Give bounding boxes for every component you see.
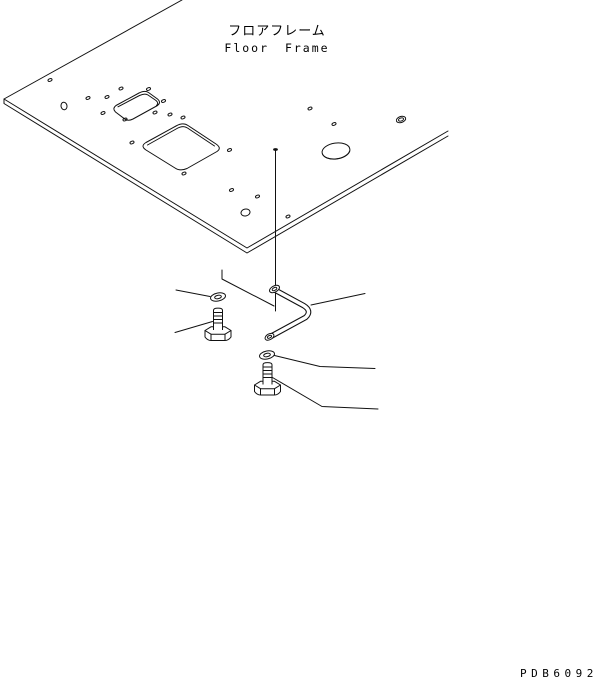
bolt-hole bbox=[101, 111, 106, 115]
leader-line-bent bbox=[222, 270, 274, 306]
bolt-hole bbox=[153, 111, 158, 115]
bent-rod bbox=[264, 284, 309, 342]
bolt-hole bbox=[146, 87, 151, 91]
bolt-hole bbox=[181, 116, 186, 120]
leader-line-rod bbox=[311, 294, 365, 306]
title-english: Floor Frame bbox=[179, 41, 375, 55]
cutout-large bbox=[143, 124, 219, 170]
diagram-page: フロアフレーム Floor Frame PDB6092 bbox=[0, 0, 606, 684]
bolt-hole bbox=[229, 188, 234, 192]
bolt-hole bbox=[332, 122, 337, 126]
bolt-upper bbox=[205, 308, 231, 340]
bolt-hole bbox=[182, 172, 187, 176]
leader-line-washer-upper bbox=[176, 290, 210, 297]
part-code: PDB6092 bbox=[520, 667, 598, 680]
bolt-hole bbox=[119, 87, 124, 91]
bolt-hole bbox=[86, 96, 91, 100]
leader-line-bolt-lower bbox=[273, 378, 379, 410]
oval-hole-medium bbox=[60, 102, 67, 111]
rod-end-lower bbox=[264, 332, 275, 342]
bolt-holes bbox=[48, 78, 337, 218]
bolt-hole bbox=[130, 141, 135, 145]
bolt-hole bbox=[168, 113, 173, 117]
floor-frame-diagram bbox=[0, 0, 606, 684]
leader-line-washer-lower bbox=[275, 356, 376, 369]
bolt-hole bbox=[286, 215, 291, 219]
leader-lines bbox=[175, 148, 378, 409]
cutout-small bbox=[114, 91, 160, 120]
bolt-hole bbox=[161, 99, 166, 103]
bolt-hole bbox=[48, 78, 53, 82]
oval-hole-medium bbox=[240, 208, 250, 217]
bolt-hole bbox=[308, 107, 313, 111]
bolt-hole bbox=[227, 148, 232, 152]
title-japanese: フロアフレーム bbox=[179, 20, 375, 39]
bolt-lower bbox=[255, 363, 281, 395]
grommet-hole bbox=[396, 115, 407, 124]
bolt-hole bbox=[105, 95, 110, 99]
washer-upper bbox=[210, 292, 227, 303]
panel-thickness-edge bbox=[4, 99, 448, 253]
washer-lower bbox=[259, 350, 276, 361]
bolt-hole bbox=[255, 195, 260, 199]
oval-hole-large bbox=[321, 141, 351, 161]
